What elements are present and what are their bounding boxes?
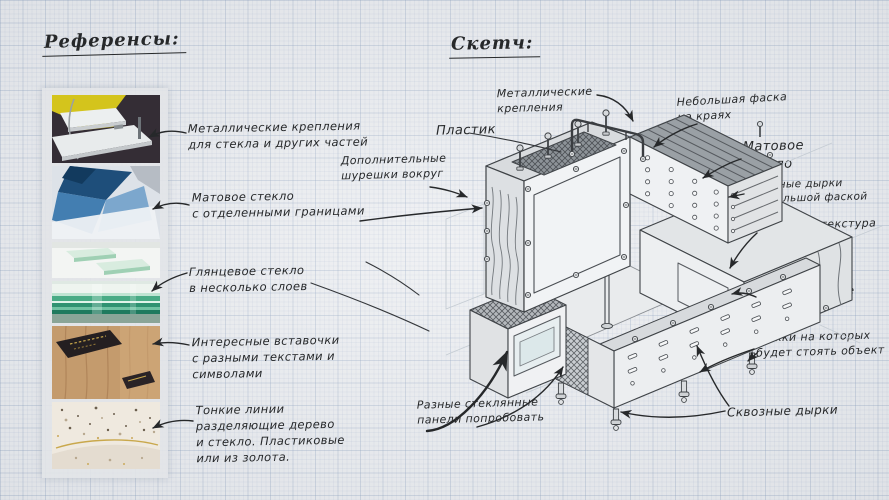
sketch-page: Референсы: Скетч: xyxy=(0,0,889,500)
reference-image-wood-insert xyxy=(52,326,160,399)
label-matte-glass: Матовое стекло xyxy=(743,137,805,174)
label-metal-fixings-top: Металлические крепления xyxy=(497,85,593,117)
note-glossy-glass: Глянцевое стекло в несколько слоев xyxy=(189,263,308,297)
reference-image-shelf-fixings xyxy=(52,95,160,163)
note-metal-fixings: Металлические крепления для стекла и дру… xyxy=(188,118,368,153)
note-inserts: Интересные вставочки с разными текстами … xyxy=(192,333,341,383)
label-wood-texture: Основная текстура дерево xyxy=(758,216,877,249)
label-through-holes-bottom: Сквозные дырки xyxy=(727,402,838,421)
label-small-chamfer: Небольшая фаска на краях xyxy=(676,90,788,125)
note-matte-glass: Матовое стекло с отделенными границами xyxy=(192,187,365,222)
references-image-column xyxy=(52,95,160,469)
sketch-heading: Скетч: xyxy=(449,32,540,59)
reference-image-speckled-gold xyxy=(52,402,160,469)
label-legs: Ножки на которых будет стоять объект xyxy=(756,328,885,361)
label-glass-panels: Разные стеклянные панели попробовать xyxy=(417,395,545,428)
reference-image-layered-glass xyxy=(52,281,160,323)
label-plastic: Пластик xyxy=(436,121,496,140)
label-through-holes-chamfer: Сквозные дырки с небольшой фаской xyxy=(745,175,868,207)
references-heading: Референсы: xyxy=(42,28,186,57)
reference-image-glass-shelves xyxy=(52,242,160,278)
note-thin-lines: Тонкие линии разделяющие дерево и стекло… xyxy=(195,401,345,467)
reference-image-blue-frosted-glass xyxy=(52,166,160,239)
label-metal-fixings-right: Металлические крепления xyxy=(759,284,855,316)
label-extra-screws: Дополнительные шурешки вокруг xyxy=(341,152,447,184)
